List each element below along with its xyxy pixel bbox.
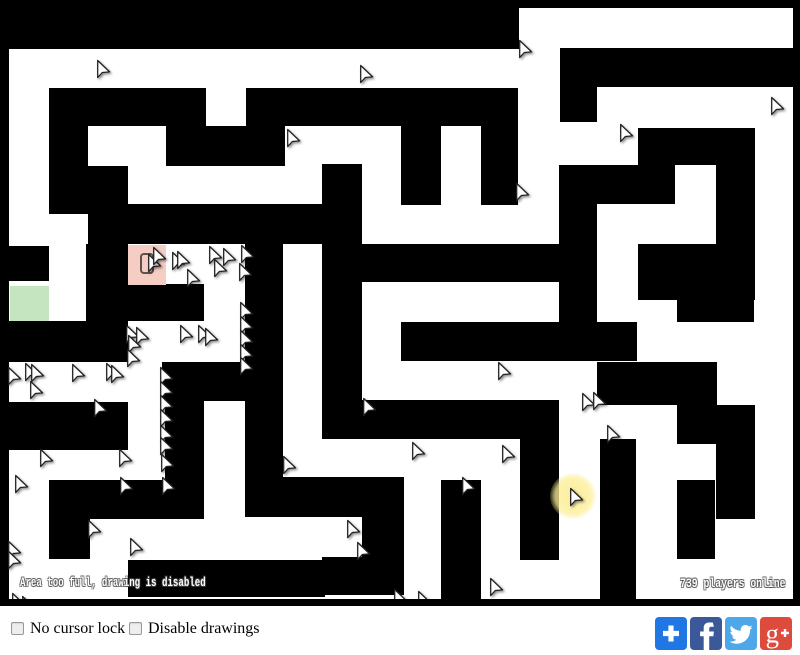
svg-text:g: g (766, 619, 780, 649)
